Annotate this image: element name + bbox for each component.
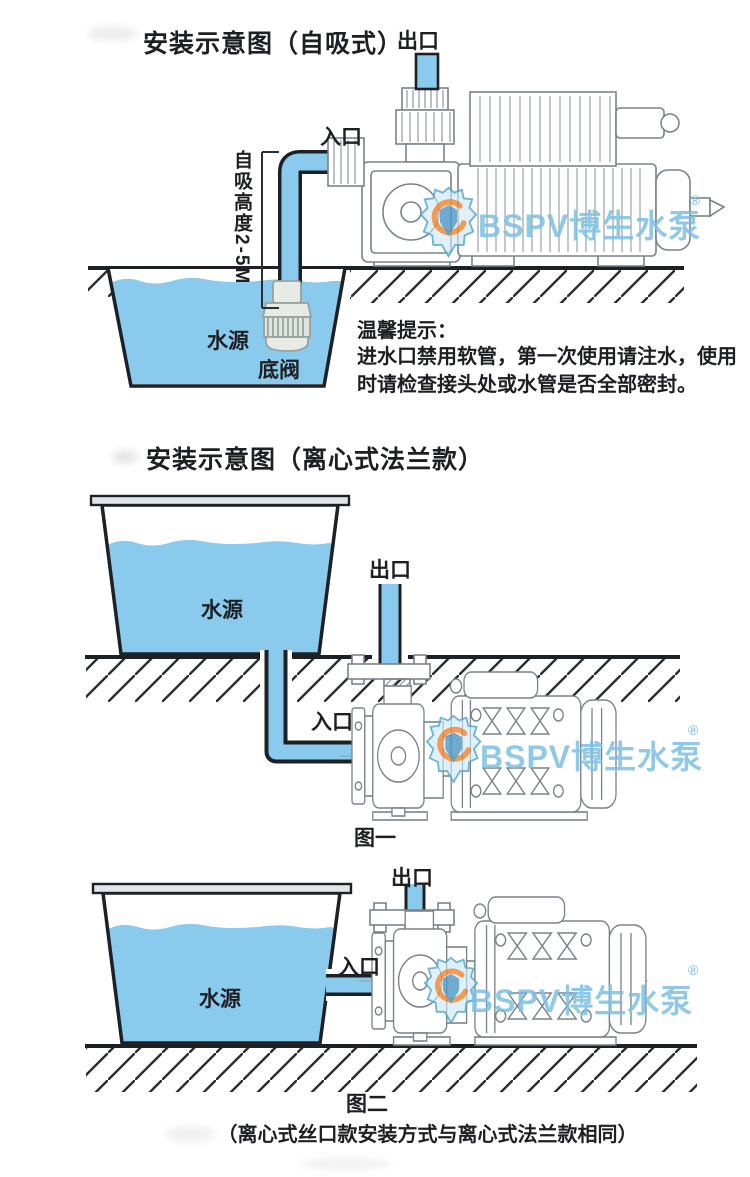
outlet-label: 出口	[391, 862, 433, 892]
water-source-label: 水源	[199, 983, 241, 1013]
registered-mark: ®	[690, 192, 700, 208]
tips-body: 进水口禁用软管，第一次使用请注水，使用时请检查接头处或水管是否全部密封。	[357, 343, 739, 399]
water-source-label: 水源	[207, 325, 249, 355]
brand-watermark-text: BSPV博生水泵	[480, 732, 703, 778]
outlet-pipe-assembly	[348, 582, 430, 692]
product-install-diagram: 安装示意图（自吸式） 出口 入口 自吸高度2-5M 水源 底阀 温馨提示： 进水…	[0, 0, 750, 1177]
outlet-pipe	[416, 54, 438, 89]
foot-valve-label: 底阀	[258, 354, 300, 384]
smudge	[112, 450, 138, 464]
smudge	[88, 26, 138, 41]
ground-hatch	[86, 1048, 697, 1092]
figure2-label: 图二	[346, 1088, 388, 1118]
registered-mark: ®	[688, 962, 698, 978]
water-tank	[91, 496, 349, 654]
tank-rim	[93, 884, 351, 893]
smudge	[165, 1126, 215, 1142]
smudge	[300, 1158, 390, 1170]
tips-title: 温馨提示：	[357, 314, 457, 343]
inlet-label: 入口	[311, 706, 353, 736]
tank-rim	[91, 496, 349, 505]
outlet-label: 出口	[369, 554, 411, 584]
bottom-note: （离心式丝口款安装方式与离心式法兰款相同）	[155, 1118, 700, 1147]
brand-watermark-text: BSPV博生水泵	[478, 201, 701, 247]
brand-watermark-text: BSPV博生水泵	[470, 976, 693, 1022]
inlet-label: 入口	[320, 121, 362, 151]
inlet-label: 入口	[338, 951, 380, 981]
section1-title: 安装示意图（自吸式）	[143, 24, 403, 60]
section2-title: 安装示意图（离心式法兰款）	[146, 440, 484, 476]
water-tank	[93, 884, 351, 1043]
registered-mark: ®	[688, 722, 698, 738]
water-source-label: 水源	[201, 594, 243, 624]
outlet-label: 出口	[397, 25, 439, 55]
figure1-label: 图一	[354, 822, 396, 852]
priming-height-label: 自吸高度2-5M	[228, 150, 255, 280]
ground-hatch-right	[350, 270, 684, 303]
